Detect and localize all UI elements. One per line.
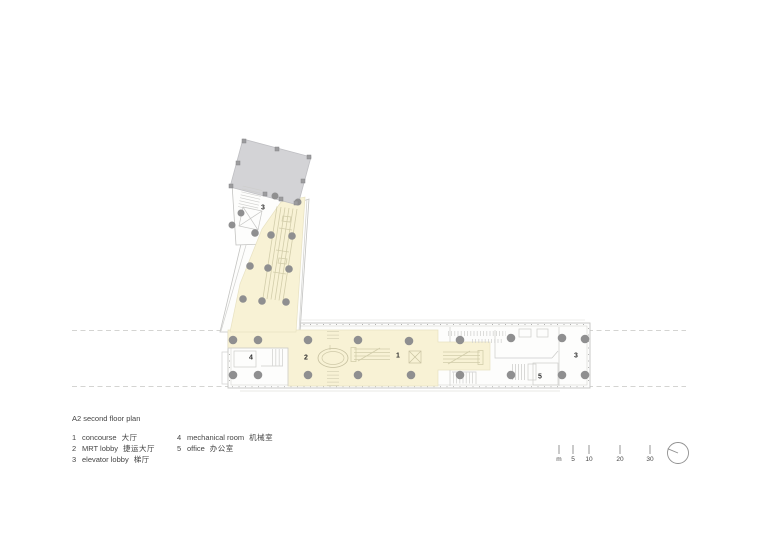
legend-item-english: elevator lobby (82, 454, 129, 465)
legend-item-english: concourse (82, 432, 117, 443)
north-arrow-icon (668, 443, 689, 464)
room-label-elevator-lobby-right: 3 (574, 353, 578, 360)
legend-item: 4 mechanical room 机械室 (177, 432, 273, 443)
legend-item-number: 2 (72, 443, 82, 454)
room-label-elevator-lobby-upper: 3 (261, 205, 265, 212)
legend-column-1: 1 concourse 大厅 2 MRT lobby 捷运大厅 3 elevat… (72, 432, 177, 465)
legend-item-chinese: 梯厅 (134, 454, 150, 465)
scale-label-30: 30 (646, 457, 653, 464)
scale-label-5: 5 (571, 457, 575, 464)
legend: A2 second floor plan 1 concourse 大厅 2 MR… (72, 414, 273, 465)
legend-columns: 1 concourse 大厅 2 MRT lobby 捷运大厅 3 elevat… (72, 432, 273, 465)
legend-item: 5 office 办公室 (177, 443, 273, 454)
room-label-office: 5 (538, 374, 542, 381)
legend-item-chinese: 捷运大厅 (123, 443, 155, 454)
legend-item-number: 1 (72, 432, 82, 443)
legend-item-chinese: 办公室 (210, 443, 234, 454)
legend-item-english: MRT lobby (82, 443, 118, 454)
legend-item: 3 elevator lobby 梯厅 (72, 454, 177, 465)
legend-item: 2 MRT lobby 捷运大厅 (72, 443, 177, 454)
room-label-mrt-lobby: 2 (304, 355, 308, 362)
scale-label-unit: m (556, 457, 561, 464)
scale-label-10: 10 (585, 457, 592, 464)
legend-item-chinese: 大厅 (122, 432, 138, 443)
floor-plan-page: 3 4 2 1 5 3 A2 second floor plan 1 conco… (0, 0, 760, 537)
legend-item-number: 3 (72, 454, 82, 465)
scale-label-20: 20 (616, 457, 623, 464)
plan-title: A2 second floor plan (72, 414, 273, 423)
legend-column-2: 4 mechanical room 机械室 5 office 办公室 (177, 432, 273, 465)
legend-item: 1 concourse 大厅 (72, 432, 177, 443)
legend-item-english: office (187, 443, 205, 454)
scale-bar-ticks (559, 445, 650, 454)
room-label-mechanical-room: 4 (249, 355, 253, 362)
room-label-concourse: 1 (396, 353, 400, 360)
legend-item-number: 4 (177, 432, 187, 443)
legend-item-english: mechanical room (187, 432, 244, 443)
legend-item-number: 5 (177, 443, 187, 454)
legend-item-chinese: 机械室 (249, 432, 273, 443)
